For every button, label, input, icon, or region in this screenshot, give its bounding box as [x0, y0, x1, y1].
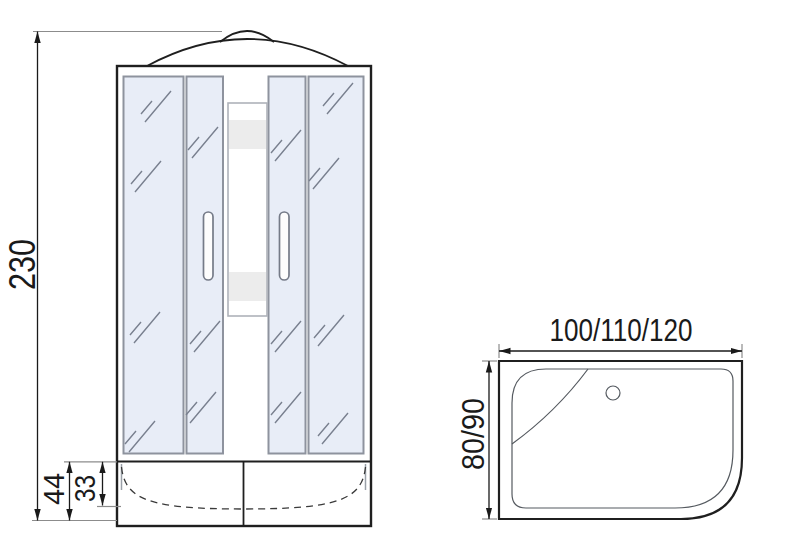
- dimension-label-depth: 80/90: [456, 398, 491, 470]
- shelf-band: [229, 272, 266, 301]
- dimension-label-base-height: 44: [37, 473, 70, 505]
- back-panel-column: [228, 103, 267, 316]
- shower-cabin-drawing: 230 44 33 100/110/120 80/90: [0, 0, 800, 560]
- dimension-label-width: 100/110/120: [550, 313, 693, 348]
- glass-pane: [309, 77, 364, 454]
- tray-outer-contour: [499, 361, 742, 519]
- dimension-label-height: 230: [2, 239, 43, 290]
- shelf-band: [229, 120, 266, 149]
- glass-pane: [124, 77, 184, 454]
- door-handle-right: [280, 212, 290, 280]
- front-view: 230 44 33: [2, 31, 372, 526]
- top-view: 100/110/120 80/90: [456, 313, 742, 519]
- dimension-label-tray-depth: 33: [68, 475, 101, 502]
- technical-drawing-page: 230 44 33 100/110/120 80/90: [0, 0, 800, 560]
- dome-roof: [147, 39, 348, 66]
- door-handle-left: [204, 212, 214, 280]
